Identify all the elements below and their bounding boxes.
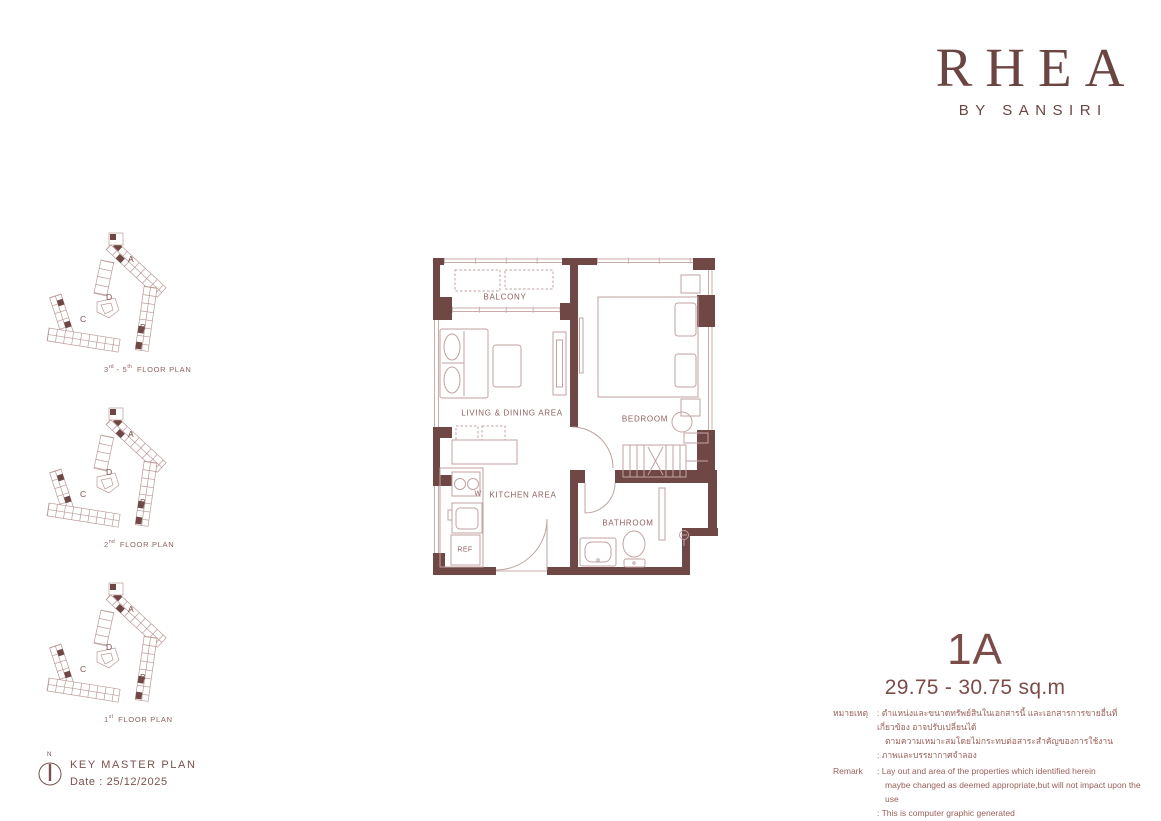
sliding-panel xyxy=(580,318,584,373)
site-plan-drawing xyxy=(45,582,195,722)
room-label-kitchen: KITCHEN AREA xyxy=(489,491,556,500)
bed xyxy=(598,297,698,397)
key-master-date: Date : 25/12/2025 xyxy=(70,776,168,788)
shower-partition xyxy=(659,488,665,540)
bedroom-door xyxy=(572,427,613,468)
site-plan-drawing xyxy=(45,232,195,372)
unit-name: 1A xyxy=(855,628,1095,672)
remark-thai-line1: : ตำแหน่งและขนาดทรัพย์สินในเอกสารนี้ และ… xyxy=(877,706,1143,734)
floor-plan-label: 3rd - 5thFLOOR PLAN xyxy=(104,364,191,374)
building-label-c: C xyxy=(80,489,87,499)
building-label-b: B xyxy=(140,322,146,332)
building-label-a: A xyxy=(128,254,134,264)
stool xyxy=(672,412,692,432)
building-label-a: A xyxy=(128,429,134,439)
unit-info: 1A 29.75 - 30.75 sq.m xyxy=(855,628,1095,700)
dining-set xyxy=(452,426,517,464)
bathroom-sink xyxy=(580,538,616,566)
remark-en-line3: : This is computer graphic generated xyxy=(877,806,1143,820)
remark-english: Remark : Lay out and area of the propert… xyxy=(833,764,1143,820)
sofa xyxy=(440,329,488,398)
building-label-d: D xyxy=(106,292,113,302)
building-label-d: D xyxy=(106,467,113,477)
remark-thai-line3: : ภาพและบรรยากาศจำลอง xyxy=(877,748,1143,762)
north-compass-icon xyxy=(34,754,66,790)
remark-en-label: Remark xyxy=(833,764,877,820)
brand-subtitle: BY SANSIRI xyxy=(928,102,1139,119)
room-label-bedroom: BEDROOM xyxy=(622,415,668,424)
building-label-b: B xyxy=(140,672,146,682)
building-label-b: B xyxy=(140,497,146,507)
room-label-living: LIVING & DINING AREA xyxy=(461,409,563,418)
brand-title: RHEA xyxy=(928,40,1145,95)
remark-en-line1: : Lay out and area of the properties whi… xyxy=(877,764,1143,778)
coffee-table xyxy=(493,345,521,387)
room-label-balcony: BALCONY xyxy=(483,293,526,302)
site-plan-drawing xyxy=(45,407,195,547)
nightstand-bottom xyxy=(681,399,700,416)
remark-thai: หมายเหตุ : ตำแหน่งและขนาดทรัพย์สินในเอกส… xyxy=(833,706,1143,762)
compass-north-label: N xyxy=(47,752,51,758)
unit-floor-plan: BALCONY LIVING & DINING AREA BEDROOM KIT… xyxy=(420,245,730,585)
key-plan-3rd-5th: A B C D 3rd - 5thFLOOR PLAN xyxy=(40,230,205,388)
toilet-icon xyxy=(623,531,645,567)
tv-console xyxy=(553,332,566,395)
balcony-furniture xyxy=(455,270,553,291)
key-master-title: KEY MASTER PLAN xyxy=(70,759,197,771)
remark-thai-label: หมายเหตุ xyxy=(833,706,877,762)
building-label-d: D xyxy=(106,642,113,652)
key-plan-1st: A B C D 1stFLOOR PLAN xyxy=(40,580,205,738)
building-label-a: A xyxy=(128,604,134,614)
brand-logo: RHEA BY SANSIRI xyxy=(928,40,1132,119)
remarks: หมายเหตุ : ตำแหน่งและขนาดทรัพย์สินในเอกส… xyxy=(833,706,1143,820)
building-label-c: C xyxy=(80,314,87,324)
key-master-plan: N KEY MASTER PLAN Date : 25/12/2025 xyxy=(34,750,254,800)
entrance-door xyxy=(496,519,547,570)
floor-plan-label: 2ndFLOOR PLAN xyxy=(104,539,174,549)
floor-plan-page: { "colors": {"wall": "#6F4846", "accent"… xyxy=(0,0,1161,821)
room-label-washer: W xyxy=(474,491,481,498)
room-label-ref: REF xyxy=(457,547,472,554)
room-label-bathroom: BATHROOM xyxy=(602,519,653,528)
bathroom-door xyxy=(585,483,615,513)
unit-area: 29.75 - 30.75 sq.m xyxy=(855,676,1095,700)
key-plan-2nd: A B C D 2ndFLOOR PLAN xyxy=(40,405,205,563)
remark-thai-line2: ตามความเหมาะสมโดยไม่กระทบต่อสาระสำคัญของ… xyxy=(877,734,1143,748)
building-label-c: C xyxy=(80,664,87,674)
floor-plan-label: 1stFLOOR PLAN xyxy=(104,714,173,724)
nightstand-top xyxy=(681,275,700,293)
remark-en-line2: maybe changed as deemed appropriate,but … xyxy=(877,778,1143,806)
